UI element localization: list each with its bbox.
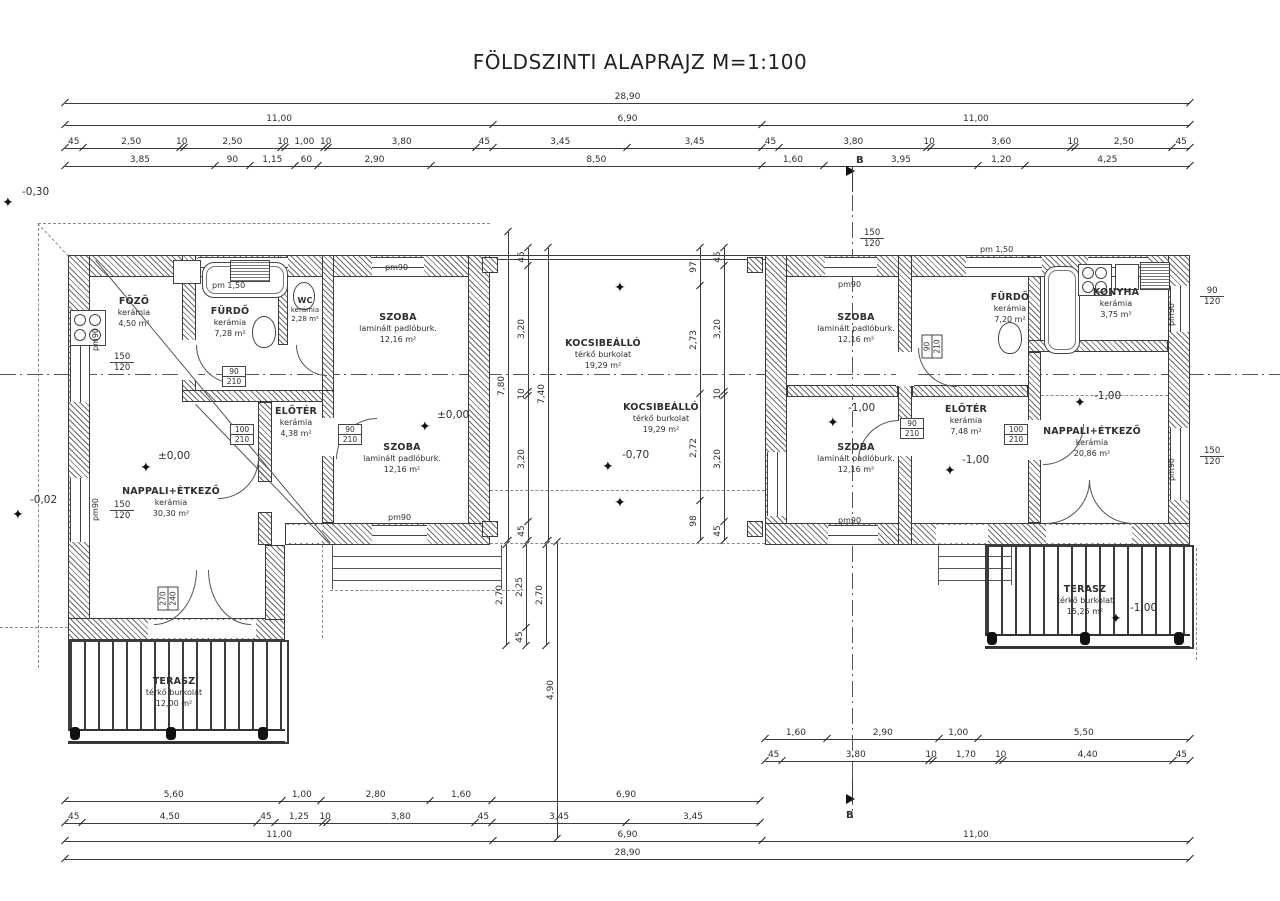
level-value: -0,02 [30,494,57,506]
dim-segment: 98 [692,501,708,540]
dim-label: 2,50 [121,137,141,147]
terrace-post [1174,632,1184,645]
stove-burner [74,314,86,326]
dim-label: 1,20 [991,155,1011,165]
door-width: 100 [1005,425,1027,435]
section-flag-icon [846,166,855,176]
dim-row-main-bottom: 11,006,9011,00 [65,833,1190,849]
door-opening [936,525,988,543]
dim-segment: 45 [716,522,732,540]
window-height: 120 [1200,297,1224,307]
dim-segment: 7,80 [500,232,516,540]
window [825,257,877,277]
room-material: laminált padlóburk. [344,454,460,464]
door-swing-arc [208,570,251,625]
dim-segment: 97 [692,248,708,286]
dim-segment: 1,60 [430,793,492,809]
room-name: KOCSIBEÁLLÓ [606,402,716,414]
dim-label: 5,50 [1074,728,1094,738]
door-size-annotation: 90210 [900,418,924,439]
stove-burner [74,329,86,341]
dim-segment: 2,50 [184,140,281,156]
dim-label: 3,80 [843,137,863,147]
dim-segment: 4,50 [82,815,257,831]
room-name: NAPPALI+ÉTKEZŐ [112,486,230,498]
window [70,478,90,542]
carport-edge-line-2 [490,259,765,260]
door-size-annotation: 90210 [922,335,943,359]
dim-row-main-top: 11,006,9011,00 [65,117,1190,133]
dim-label: 45 [1175,137,1186,147]
wall-partition [258,512,272,545]
level-value: -1,00 [1094,390,1121,402]
dim-label: 7,80 [497,376,507,396]
dim-label: 45 [768,750,779,760]
dim-label: 3,80 [846,750,866,760]
level-marker-icon [602,460,614,474]
room-area: 4,50 m² [92,319,176,329]
window-width: 150 [860,228,884,239]
dim-segment: 11,00 [762,833,1190,849]
dim-label: 90 [227,155,238,165]
roof-hip-dash [37,223,69,256]
dim-segment: 1,00 [939,731,978,747]
dash-right-terrace [1196,548,1197,660]
dim-segment: 4,40 [1003,753,1173,769]
dim-segment: 1,60 [762,158,824,174]
level-marker-icon [1074,396,1086,410]
room-area: 4,38 m² [258,429,334,439]
dim-label: 1,60 [451,790,471,800]
room-material: laminált padlóburk. [798,454,914,464]
section-flag-stem [852,778,853,802]
room-area: 7,48 m² [925,427,1007,437]
dim-segment: 6,90 [493,117,762,133]
stove-burner [1095,267,1107,279]
dim-col-carport-right-b: 453,20103,2045 [716,248,732,540]
level-value: -0,30 [22,186,49,198]
door-width: 90 [901,419,923,429]
dash-entry-overhang [330,590,520,591]
door-swing-arc [296,345,327,376]
dim-label: 45 [1176,750,1187,760]
dim-label: 1,00 [292,790,312,800]
room-area: 15,25 m² [1028,607,1142,617]
room-name: KONYHA [1068,287,1164,299]
parapet-label: pm 1,50 [212,281,245,290]
door-width: 100 [231,425,253,435]
section-label-bottom: B [846,810,854,821]
room-name: NAPPALI+ÉTKEZŐ [1030,426,1154,438]
dim-row-detail2-top: 3,85901,15602,908,501,603,951,204,25 [65,158,1190,174]
wall [265,545,285,620]
dim-row-right-1: 1,602,901,005,50 [765,731,1190,747]
dim-row-bottomleft-2: 454,50451,25103,80453,453,45 [65,815,760,831]
dim-segment: 11,00 [762,117,1190,133]
room-area: 12,16 m² [798,465,914,475]
dim-segment: 3,20 [520,396,536,522]
wall-partition [787,385,898,397]
dim-segment: 2,80 [321,793,430,809]
dim-row-total-top: 28,90 [65,95,1190,111]
dim-label: 11,00 [963,830,989,840]
level-marker-icon [12,508,24,522]
room-material: térkő burkolat [606,414,716,424]
room-material: kerámia [92,308,176,318]
door-size-annotation: 100210 [230,424,254,445]
dim-label: 3,20 [517,319,527,339]
door-opening [896,352,914,386]
room-furdo-right: FÜRDŐ kerámia 7,20 m² [972,292,1048,325]
carport-column [747,521,763,537]
level-marker-icon [419,420,431,434]
room-furdo-left: FÜRDŐ kerámia 7,28 m² [192,306,268,339]
dim-label: 1,15 [262,155,282,165]
level-value: -1,00 [848,402,875,414]
dim-label: 2,50 [1114,137,1134,147]
room-area: 7,28 m² [192,329,268,339]
dim-label: 45 [517,251,527,262]
parapet-label: pm90 [1167,458,1176,481]
dim-segment: 2,50 [1075,140,1172,156]
dim-segment: 6,90 [493,833,762,849]
room-szoba-left-2: SZOBA laminált padlóburk. 12,16 m² [344,442,460,475]
door-height: 210 [901,429,923,438]
dim-label: 1,25 [289,812,309,822]
window-width: 150 [1200,446,1224,457]
terrace-door-opening [1046,525,1132,543]
survey-marker-icon [614,281,626,295]
dim-segment: 1,15 [250,158,295,174]
room-nappali-right: NAPPALI+ÉTKEZŐ kerámia 20,86 m² [1030,426,1154,459]
dim-segment: 3,20 [716,396,732,522]
dim-row-total-bottom: 28,90 [65,851,1190,867]
window-size-annotation: 150120 [110,500,134,521]
section-flag-icon [846,794,855,804]
entry-steps [332,545,502,589]
terrace-post [987,632,997,645]
wall-partition [898,255,912,545]
dim-label: 45 [517,525,527,536]
dim-col-carport-740: 7,40 [540,248,556,540]
survey-marker-icon [614,496,626,510]
window-width: 150 [110,500,134,511]
window [828,525,878,545]
dim-label: 2,70 [535,585,545,605]
room-material: térkő burkolat [548,350,658,360]
dim-label: 3,45 [550,137,570,147]
room-szoba-left-1: SZOBA laminált padlóburk. 12,16 m² [340,312,456,345]
room-kocsibeallo-1: KOCSIBEÁLLÓ térkő burkolat 19,29 m² [548,338,658,371]
wall-partition [322,255,334,402]
door-height: 210 [231,435,253,444]
dim-row-right-2: 453,80101,70104,4045 [765,753,1190,769]
dim-segment: 3,80 [328,140,476,156]
room-area: 19,29 m² [548,361,658,371]
door-width: 90 [339,425,361,435]
level-marker-icon [140,461,152,475]
dim-label: 45 [515,631,525,642]
dim-label: 3,20 [517,449,527,469]
dim-segment: 2,25 [518,545,534,628]
room-material: kerámia [282,306,328,315]
room-area: 19,29 m² [606,425,716,435]
dim-label: 45 [478,812,489,822]
dim-label: 2,72 [689,438,699,458]
dim-segment: 1,60 [765,731,827,747]
window-height: 120 [860,239,884,249]
door-width: 90 [223,367,245,377]
room-area: 20,86 m² [1030,449,1154,459]
level-value: -0,70 [622,449,649,461]
dim-label: 11,00 [963,114,989,124]
window-size-annotation: 150120 [1200,446,1224,467]
carport-edge-line [490,255,765,256]
dim-segment: 6,90 [492,793,760,809]
door-height: 210 [933,336,942,358]
dim-segment: 60 [295,158,318,174]
dim-segment: 45 [1173,753,1190,769]
dim-label: 1,70 [956,750,976,760]
kitchen-counter [230,260,270,282]
dim-label: 2,25 [515,577,525,597]
dim-label: 2,90 [364,155,384,165]
dim-label: 1,60 [786,728,806,738]
parapet-label: pm90 [91,498,100,521]
parapet-label: pm90 [838,516,861,525]
room-material: laminált padlóburk. [340,324,456,334]
dim-segment: 3,80 [327,815,475,831]
roof-overhang-dash-top [38,223,490,224]
room-name: FŐZŐ [92,296,176,308]
dim-label: 7,40 [537,384,547,404]
dim-row-bottomleft-1: 5,601,002,801,606,90 [65,793,760,809]
room-area: 12,00 m² [122,699,226,709]
floor-plan-page: { "title": "FÖLDSZINTI ALAPRAJZ M=1:100"… [0,0,1280,901]
room-name: ELŐTÉR [925,404,1007,416]
window-size-annotation: 90120 [1200,286,1224,307]
parapet-label: pm90 [838,280,861,289]
parapet-label: pm90 [388,513,411,522]
level-value: ±0,00 [437,409,469,421]
window-size-annotation: 150120 [110,352,134,373]
dim-label: 45 [713,525,723,536]
section-label-top: B [856,155,864,166]
room-eloter-left: ELŐTÉR kerámia 4,38 m² [258,406,334,439]
dim-label: 3,80 [392,137,412,147]
level-value: -1,00 [1130,602,1157,614]
dim-label: 2,90 [873,728,893,738]
terrace-post [70,727,80,740]
dim-col-mid-490: 4,90 [549,542,565,838]
terrace-edge-beam [68,729,285,743]
window-size-annotation: 150120 [860,228,884,249]
dim-segment: 3,60 [931,140,1071,156]
dim-label: 2,50 [222,137,242,147]
dim-label: 3,80 [391,812,411,822]
room-wc: WC kerámia 2,28 m² [282,296,328,325]
dim-segment: 2,90 [827,731,939,747]
room-name: TERASZ [122,676,226,688]
dash-left-terrace [0,627,68,628]
dim-label: 11,00 [266,830,292,840]
dim-segment: 45 [518,628,534,645]
dim-segment: 3,80 [779,140,927,156]
dim-label: 6,90 [616,790,636,800]
room-szoba-right-2: SZOBA laminált padlóburk. 12,16 m² [798,442,914,475]
window [372,525,427,545]
dim-col-carport-right-a: 972,732,7298 [692,248,708,540]
dim-label: 1,00 [294,137,314,147]
dim-label: 11,00 [266,114,292,124]
dim-segment: 5,50 [978,731,1191,747]
dim-label: 97 [689,261,699,272]
stove-burner [1082,267,1094,279]
room-name: SZOBA [798,442,914,454]
dim-col-carport-left: 453,20103,2045 [520,248,536,540]
door-size-annotation: 90210 [338,424,362,445]
room-material: laminált padlóburk. [798,324,914,334]
door-height: 210 [223,377,245,386]
room-name: ELŐTÉR [258,406,334,418]
dim-segment: 1,20 [978,158,1025,174]
room-material: térkő burkolat [122,688,226,698]
dim-segment: 8,50 [431,158,762,174]
dim-label: 6,90 [617,830,637,840]
dim-segment: 2,90 [318,158,431,174]
level-marker-icon [2,196,14,210]
dim-segment: 1,00 [282,793,321,809]
dim-segment: 1,25 [275,815,324,831]
carport-column [482,257,498,273]
parapet-label: pm 1,50 [980,245,1013,254]
dim-label: 45 [68,137,79,147]
window-width: 150 [110,352,134,363]
carport-column [482,521,498,537]
window [966,257,1042,277]
window-height: 120 [1200,457,1224,467]
dim-label: 3,95 [891,155,911,165]
parapet-label: pm90 [1167,303,1176,326]
dim-label: 3,60 [991,137,1011,147]
dash-carport-mid [490,490,765,491]
dim-label: 6,90 [617,114,637,124]
terrace-post [1080,632,1090,645]
dim-label: 8,50 [586,155,606,165]
dim-segment: 3,45 [627,140,761,156]
room-material: kerámia [972,304,1048,314]
kitchen-counter [1140,262,1170,290]
dim-label: 3,45 [683,812,703,822]
room-area: 2,28 m² [282,315,328,324]
dim-label: 45 [260,812,271,822]
room-name: KOCSIBEÁLLÓ [548,338,658,350]
terrace-post [258,727,268,740]
dim-segment: 2,73 [692,286,708,394]
room-material: térkő burkolat [1028,596,1142,606]
dim-label: 4,50 [160,812,180,822]
roof-overhang-dash-left [38,223,39,668]
door-height: 240 [169,588,178,610]
room-name: FÜRDŐ [192,306,268,318]
dim-row-detail-top: 452,50102,50101,00103,80453,453,45453,80… [65,140,1190,156]
door-width: 270 [159,588,169,610]
dim-segment: 3,45 [626,815,760,831]
dim-label: 45 [765,137,776,147]
wall-partition [912,385,1028,397]
dim-label: 45 [713,251,723,262]
dim-label: 28,90 [615,848,641,858]
dim-label: 3,45 [685,137,705,147]
dim-label: 60 [301,155,312,165]
dim-segment: 5,60 [65,793,282,809]
dim-segment: 1,00 [285,140,324,156]
door-height: 210 [1005,435,1027,444]
dim-segment: 4,90 [549,542,565,838]
dim-segment: 3,45 [493,140,627,156]
level-marker-icon [827,416,839,430]
dim-segment: 2,50 [83,140,180,156]
room-material: kerámia [1068,299,1164,309]
door-size-annotation: 100210 [1004,424,1028,445]
window [767,452,787,516]
window-height: 120 [110,363,134,373]
room-name: FÜRDŐ [972,292,1048,304]
dim-label: 2,73 [689,330,699,350]
dim-label: 4,90 [546,680,556,700]
dim-col-carport-780: 7,80 [500,232,516,540]
room-konyha: KONYHA kerámia 3,75 m² [1068,287,1164,320]
dim-col-mid-2: 2,2545 [518,545,534,645]
room-area: 12,16 m² [340,335,456,345]
room-eloter-right: ELŐTÉR kerámia 7,48 m² [925,404,1007,437]
wall [468,255,490,545]
window [70,338,90,402]
dim-segment: 45 [520,522,536,540]
room-name: SZOBA [798,312,914,324]
dim-label: 1,00 [948,728,968,738]
door-size-annotation: 270240 [158,587,179,611]
door-swing-arc [1046,480,1090,524]
room-terasz-right: TERASZ térkő burkolat 15,25 m² [1028,584,1142,617]
room-material: kerámia [1030,438,1154,448]
door-width: 90 [923,336,933,358]
window-height: 120 [110,511,134,521]
dim-label: 3,20 [713,319,723,339]
room-area: 12,16 m² [798,335,914,345]
parapet-label: pm90 [91,328,100,351]
dim-label: 1,60 [783,155,803,165]
room-fozo: FŐZŐ kerámia 4,50 m² [92,296,176,329]
door-height: 210 [339,435,361,444]
dim-segment: 3,80 [782,753,929,769]
room-material: kerámia [258,418,334,428]
page-title: FÖLDSZINTI ALAPRAJZ M=1:100 [330,50,950,74]
toilet [998,322,1022,354]
terrace-post [166,727,176,740]
room-name: SZOBA [340,312,456,324]
dim-label: 2,80 [366,790,386,800]
door-swing-arc [1089,480,1133,524]
dim-segment: 11,00 [65,833,493,849]
room-name: WC [282,296,328,306]
room-area: 3,75 m² [1068,310,1164,320]
dim-segment: 7,40 [540,248,556,540]
door-size-annotation: 90210 [222,366,246,387]
kitchen-counter [173,260,201,284]
window-width: 90 [1200,286,1224,297]
room-name: TERASZ [1028,584,1142,596]
